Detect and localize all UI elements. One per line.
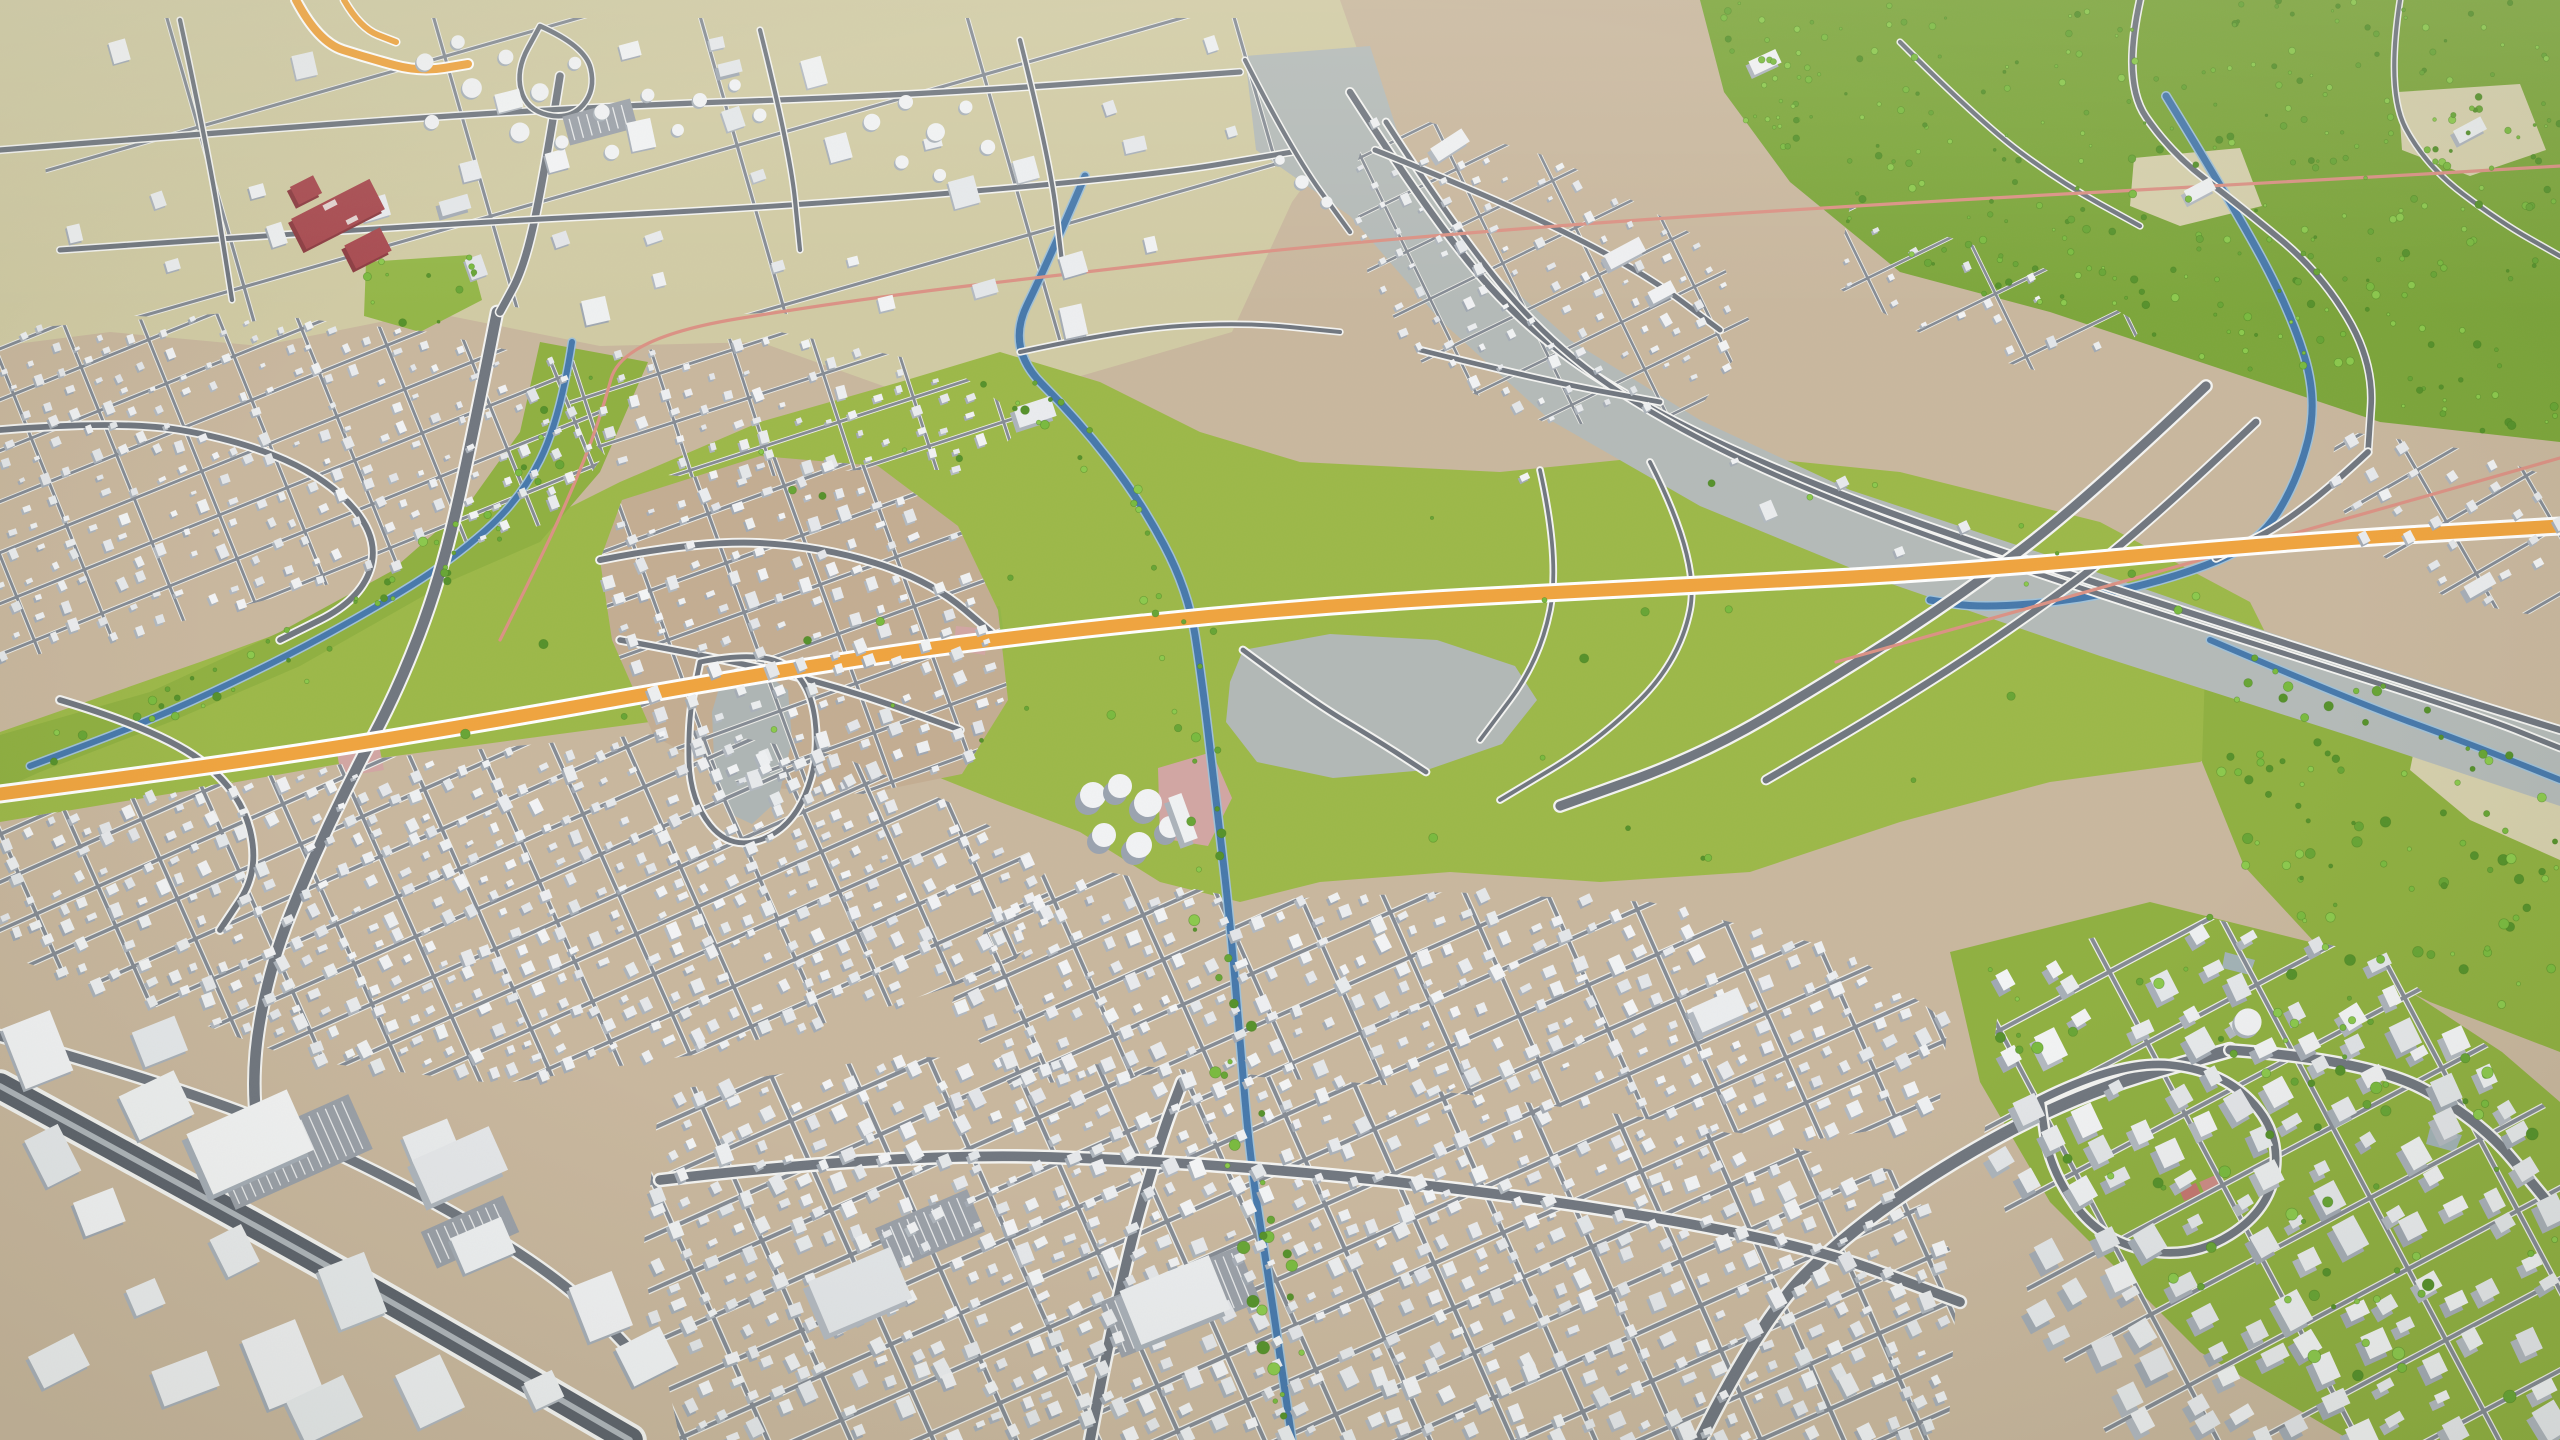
city-3d-map-render — [0, 0, 2560, 1440]
atmosphere-overlay — [0, 0, 2560, 1440]
render-viewport — [0, 0, 2560, 1440]
top-haze — [0, 0, 2560, 1440]
